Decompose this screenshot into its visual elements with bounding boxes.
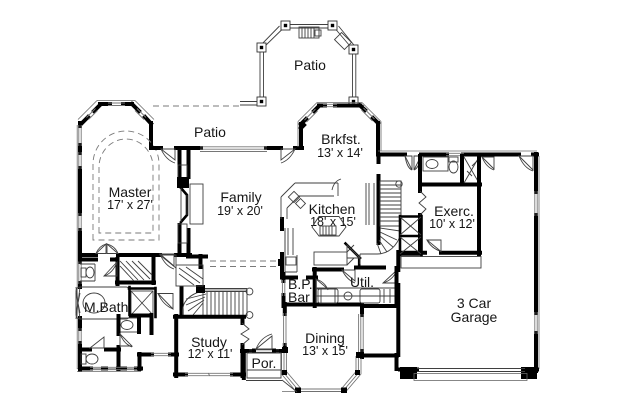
svg-text:Brkfst.: Brkfst. [321, 131, 361, 147]
svg-text:Util.: Util. [350, 274, 374, 290]
svg-text:Family: Family [220, 189, 261, 205]
svg-text:13' x 14': 13' x 14' [317, 146, 363, 160]
svg-text:Por.: Por. [252, 355, 277, 371]
svg-text:18' x 15': 18' x 15' [310, 215, 356, 229]
svg-text:10' x 12': 10' x 12' [429, 217, 475, 231]
svg-text:13' x 15': 13' x 15' [302, 344, 348, 358]
svg-text:Bar: Bar [288, 289, 310, 305]
svg-text:Patio: Patio [294, 57, 326, 73]
svg-text:12' x 11': 12' x 11' [188, 347, 233, 361]
svg-text:19' x 20': 19' x 20' [217, 204, 263, 218]
svg-text:17' x 27': 17' x 27' [107, 198, 153, 212]
svg-text:Patio: Patio [194, 124, 226, 140]
svg-text:Garage: Garage [451, 309, 498, 325]
svg-text:M.Bath: M.Bath [84, 299, 128, 315]
